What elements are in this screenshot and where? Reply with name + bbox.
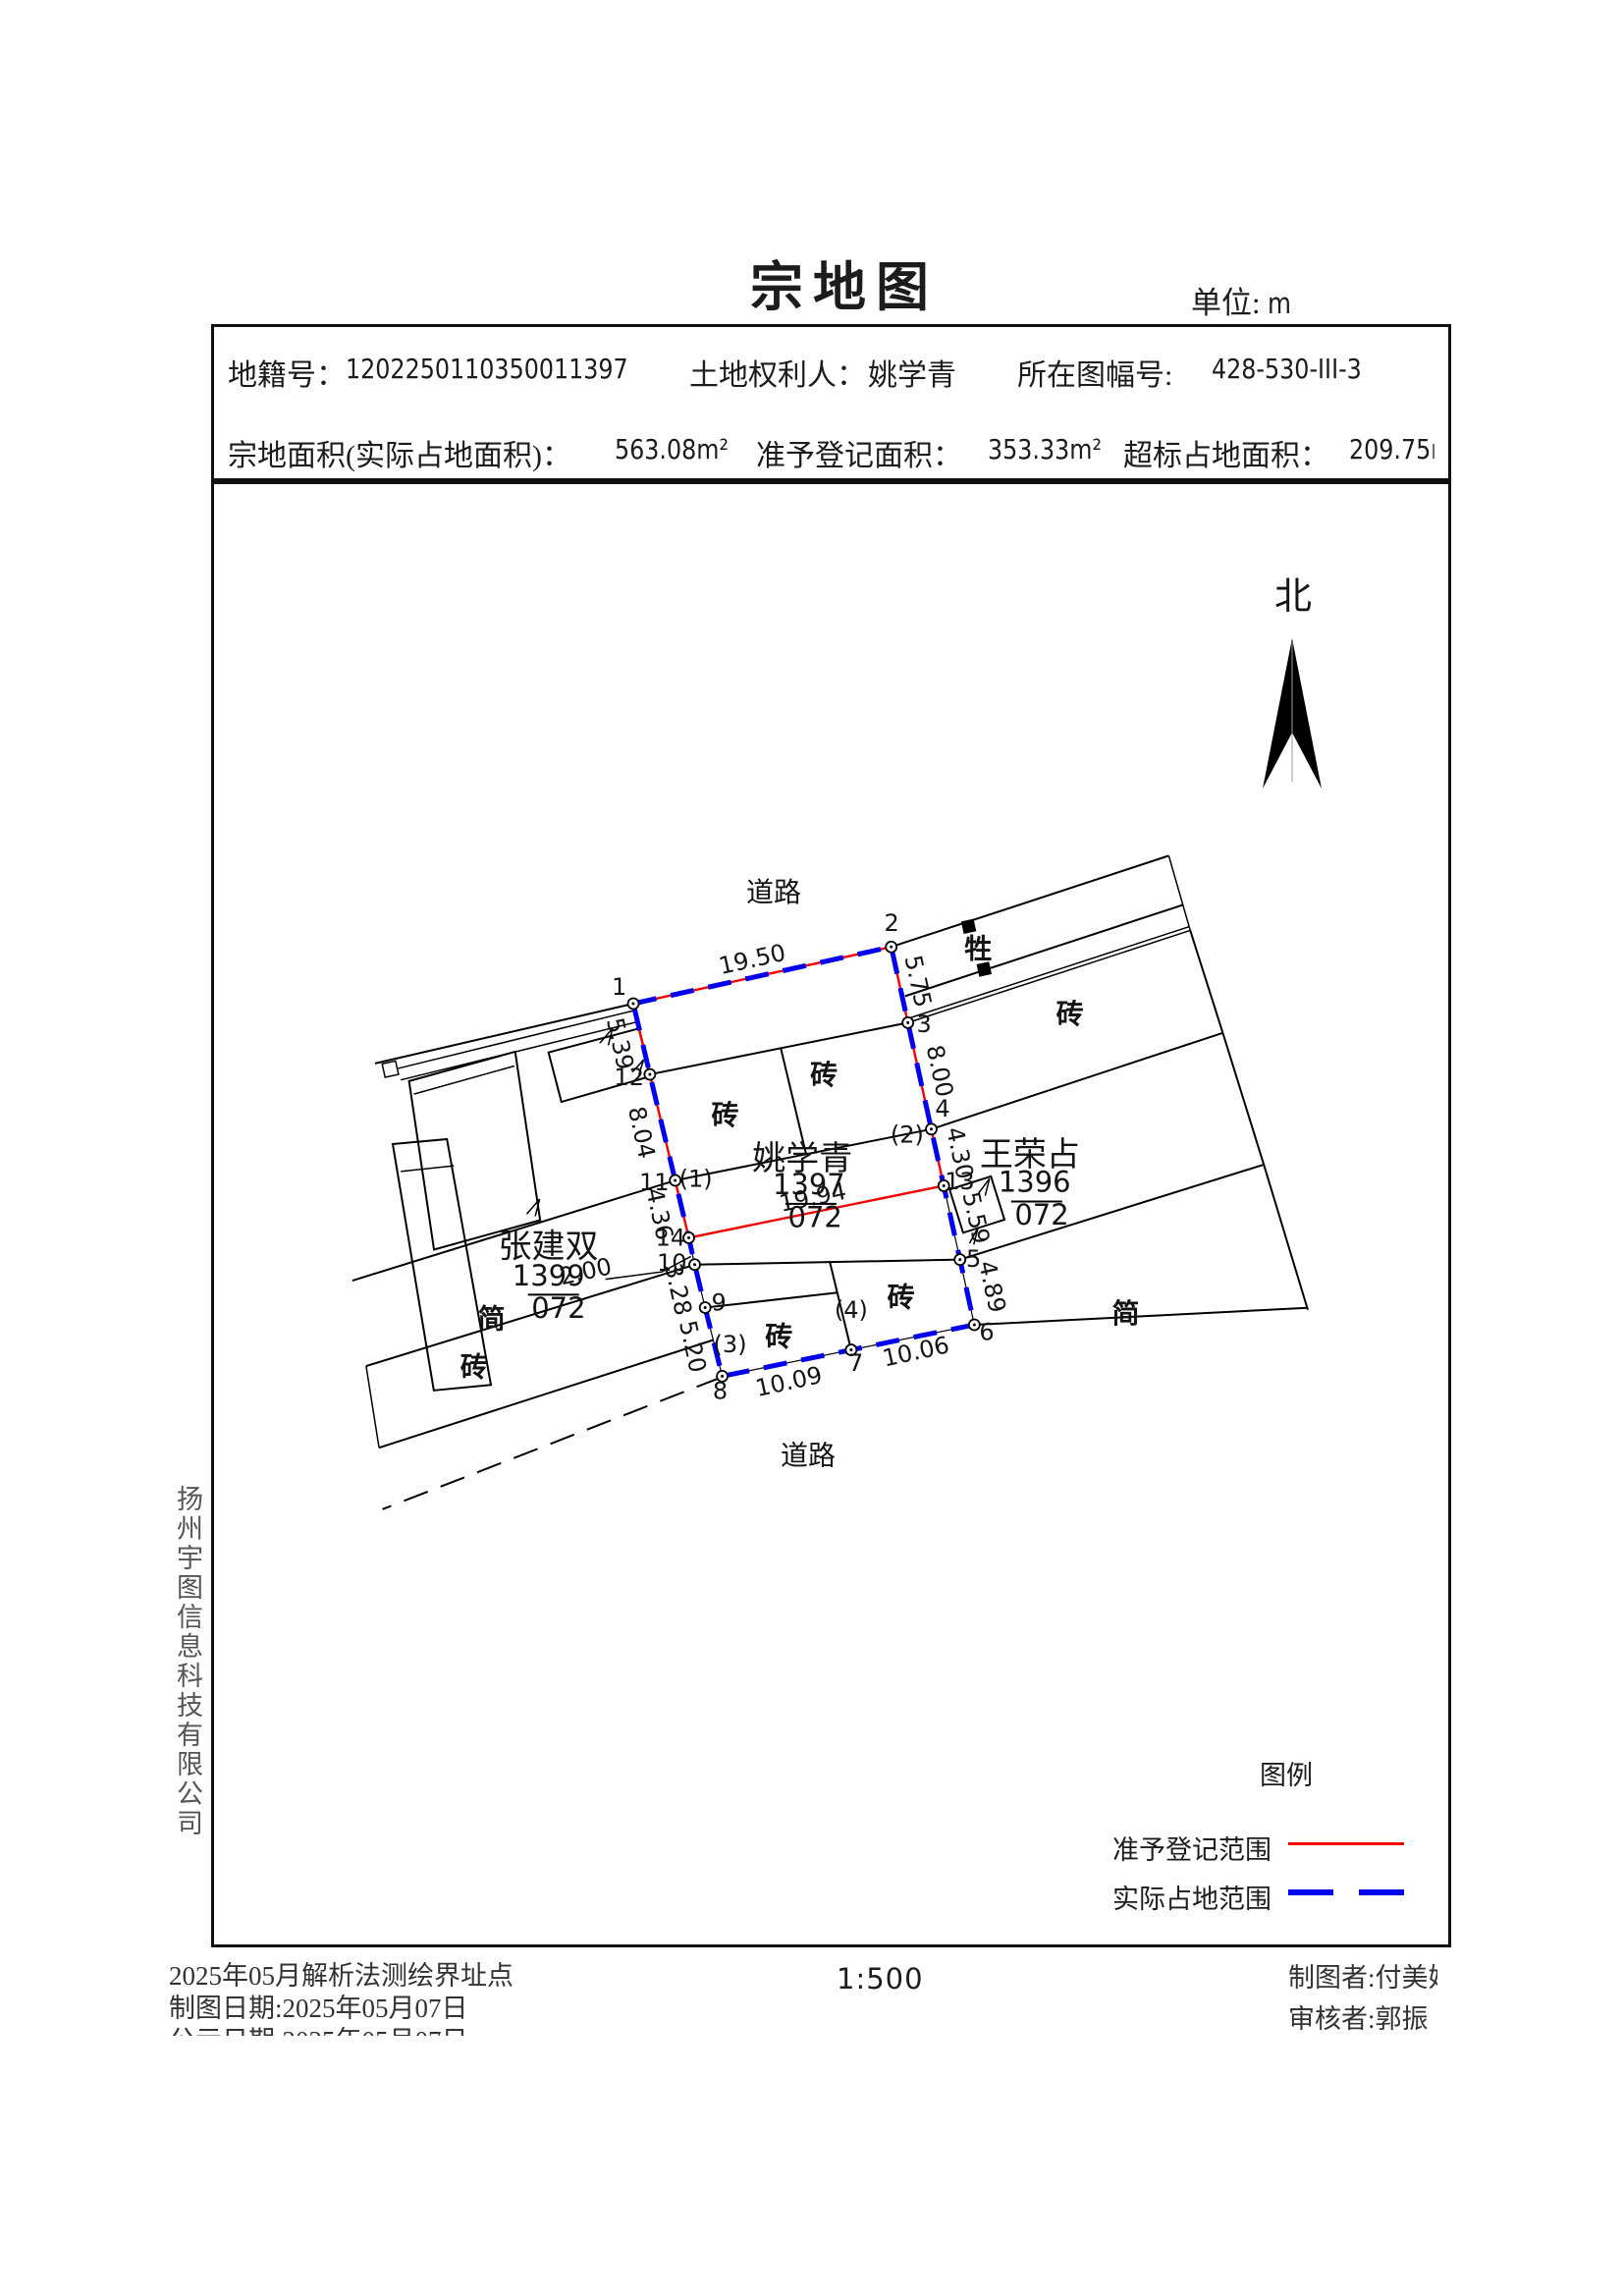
livestock-label: 牲 [964,933,992,964]
right-strip-double2 [901,930,1196,1022]
map-scale: 1:500 [837,1962,924,1995]
point-label-6: 6 [979,1319,994,1346]
legend-registered-line [1288,1842,1404,1845]
left-strip-endcap [382,1061,399,1077]
paren-label-2: (2) [891,1121,924,1148]
point-label-9: 9 [712,1289,727,1317]
header-table: 地籍号： 1202250110350011397 土地权利人： 姚学青 所在图幅… [211,324,1451,481]
point-label-7: 7 [848,1349,863,1377]
main-parcel-number: 1397 [773,1168,845,1201]
sheet-no-value: 428-530-III-3 [1212,353,1414,385]
point-label-2: 2 [885,909,899,937]
unit-value: m [1268,287,1291,320]
paren-label-3: (3) [714,1331,747,1358]
dim-l2: 8.04 [622,1104,661,1161]
registered-value: 353.33m² [988,433,1102,465]
right-strip-double1 [900,927,1195,1019]
unit-label: 单位: [1191,286,1261,320]
brick-label-2: 砖 [810,1060,838,1091]
dim-l3: 4.36 [640,1185,678,1242]
dim-r4: 5.59 [957,1189,996,1246]
detached-building-inner [412,1066,515,1095]
page-title: 宗地图 [648,244,1041,321]
cadastral-map: 1 2 3 4 5 6 7 8 9 10 11 12 13 14 (1) (2)… [211,481,1451,1947]
dim-top: 19.50 [717,939,788,980]
point-label-3: 3 [917,1011,932,1038]
page: { "title": "宗地图", "unit": {"label": "单位:… [0,0,1623,2296]
dim-r5: 4.89 [973,1258,1011,1315]
brick-label-5: 砖 [888,1283,915,1314]
farleft-building-inner [401,1160,454,1176]
footer-clipped-date: 公示日期:2025年05月07日 [169,2019,468,2036]
wall-mid-divider [781,1048,806,1155]
registered-label: 准予登记面积： [756,431,962,474]
road-dashed-left [370,1378,732,1509]
dim-l5: 5.20 [674,1318,712,1375]
legend-actual-line [1288,1889,1404,1895]
simple-label-1: 简 [478,1303,506,1336]
footer-reviewer: 审核者:郭振 [1288,1997,1429,2036]
right-6-line-ext [974,1254,1307,1379]
left-parcel-code: 072 [531,1291,585,1325]
sheet-label: 所在图幅号: [1017,351,1172,394]
point-label-4: 4 [935,1095,949,1122]
excess-label: 超标占地面积： [1123,431,1329,474]
area-label: 宗地面积(实际占地面积)： [228,431,571,474]
excess-value: 209.75m [1349,433,1434,465]
main-parcel-code: 072 [788,1201,842,1234]
left-building-bottom [372,1340,721,1449]
footer-drafter: 制图者:付美娟 [1288,1956,1437,1995]
dim-b2: 10.06 [880,1331,951,1372]
legend-title: 图例 [1260,1754,1313,1792]
brick-label-6: 砖 [460,1352,488,1384]
right-strip-cap [1168,854,1190,931]
simple-label-2: 简 [1111,1297,1139,1330]
shed-square-1 [961,919,976,934]
point-label-8: 8 [713,1377,728,1404]
wall-12-3 [650,1018,908,1079]
left-parcel-number: 1399 [513,1259,585,1292]
parcel-no-value: 1202250110350011397 [346,353,628,385]
right-strip-bottom [898,905,1189,997]
dim-l1: 5.39 [601,1015,639,1072]
owner-label: 土地权利人： [689,351,866,394]
dim-r2: 8.00 [921,1042,959,1099]
brick-label-3: 砖 [1056,999,1084,1030]
right-parcel-number: 1396 [999,1166,1071,1199]
owner-value: 姚学青 [868,351,956,394]
point-label-1: 1 [612,973,626,1001]
paren-label-1: (1) [679,1166,713,1193]
legend-item-actual-label: 实际占地范围 [1075,1878,1271,1916]
company-name: 扬州宇图信息科技有限公司 [169,1485,207,1838]
brick-label-1: 砖 [712,1100,739,1131]
road-label-top: 道路 [746,877,801,908]
road-label-bottom: 道路 [781,1441,836,1472]
legend-actual-dash-1 [1288,1889,1333,1895]
right-parcel-code: 072 [1014,1198,1068,1231]
right-outer-boundary [1190,923,1308,1317]
detached-building [397,1052,554,1249]
right-strip-top [885,855,1175,947]
parcel-no-label: 地籍号： [228,351,346,394]
legend-item-registered-label: 准予登记范围 [1075,1829,1271,1867]
unit-row: 单位: m [1191,278,1296,322]
area-value: 563.08m² [615,433,729,465]
legend-actual-dash-2 [1359,1889,1404,1895]
left-building-cap [361,1366,384,1448]
brick-label-4: 砖 [765,1321,792,1352]
paren-label-4: (4) [835,1296,868,1324]
right-4-line-ext [925,1033,1230,1129]
